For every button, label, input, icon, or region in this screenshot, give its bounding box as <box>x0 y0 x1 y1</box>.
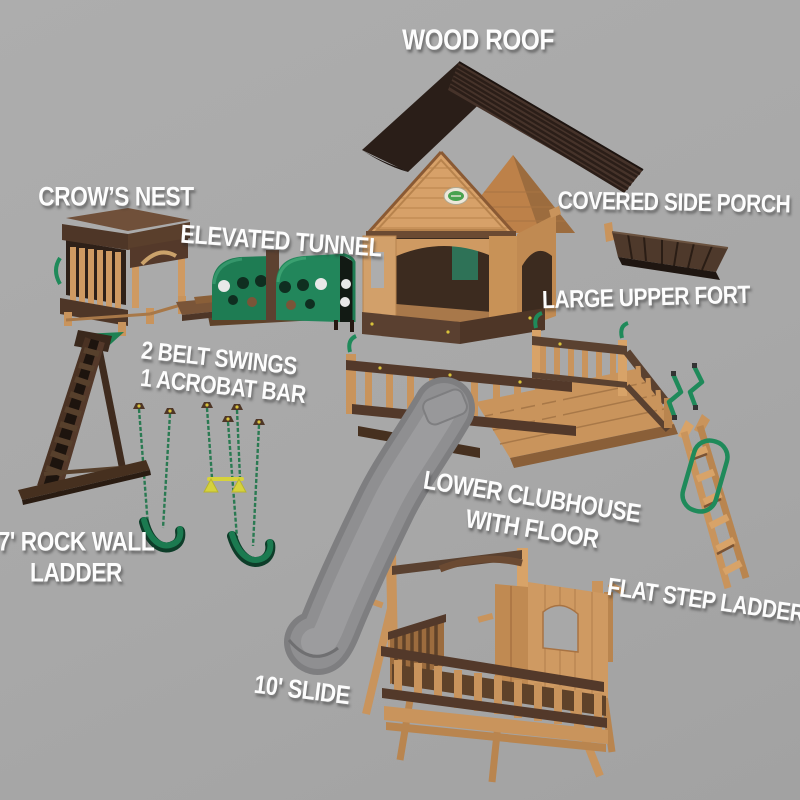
brand-badge <box>444 188 468 205</box>
green-handle-icon <box>621 323 628 338</box>
lower-clubhouse-art <box>366 548 625 782</box>
diagram-artwork <box>0 0 800 800</box>
label-wood-roof: WOOD ROOF <box>402 25 554 58</box>
label-rock-wall-line1: 7' ROCK WALL <box>0 527 154 558</box>
label-large-upper-fort: LARGE UPPER FORT <box>542 281 751 315</box>
label-rock-wall-line2: LADDER <box>30 558 122 589</box>
flat-step-ladder-art <box>669 363 746 588</box>
rock-wall-ladder-art <box>18 330 151 505</box>
crows-nest-art <box>56 208 190 336</box>
exploded-diagram: WOOD ROOF CROW’S NEST ELEVATED TUNNEL CO… <box>0 0 800 800</box>
elevated-tunnel-art <box>176 250 354 332</box>
green-handle-icon <box>56 258 60 284</box>
acrobat-bar-icon <box>204 479 246 492</box>
green-handle-icon <box>669 363 702 420</box>
label-crows-nest: CROW’S NEST <box>38 182 193 213</box>
upper-clubhouse-art <box>360 152 580 344</box>
green-handle-icon <box>349 336 356 352</box>
label-covered-side-porch: COVERED SIDE PORCH <box>557 186 790 219</box>
